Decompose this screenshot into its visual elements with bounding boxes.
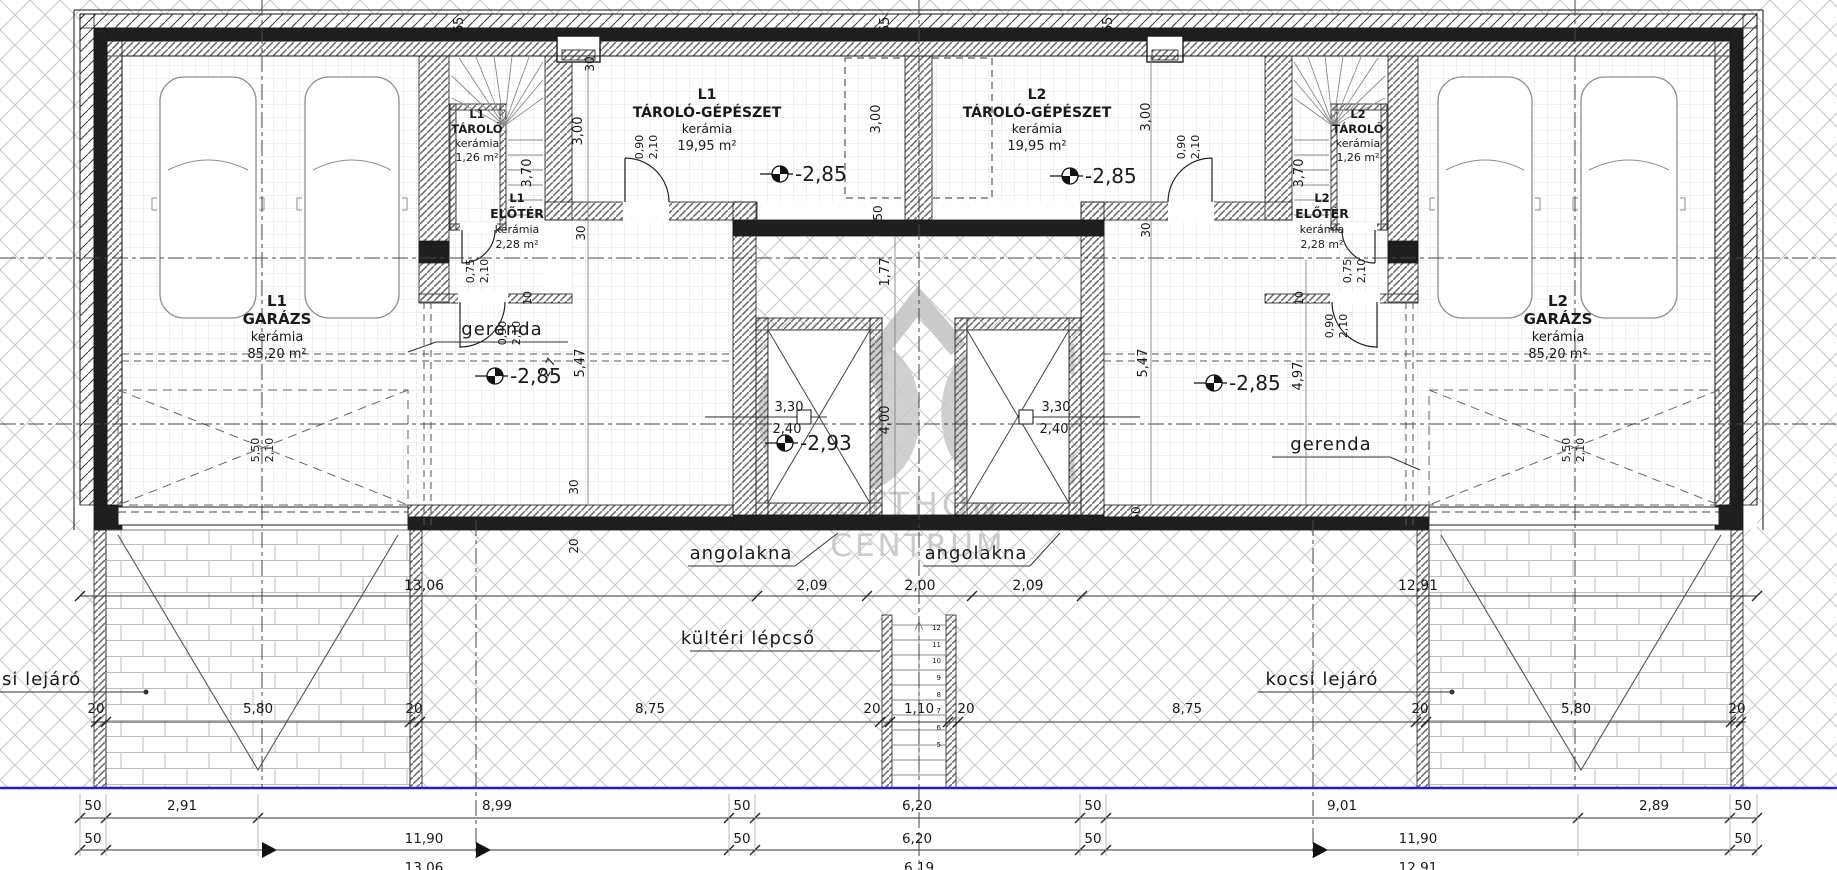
dim-label: 30 [583,56,597,71]
dim-label: 0,90 [1175,135,1188,160]
car-icon [305,77,399,318]
dim-label: 8,75 [1172,701,1202,717]
room-l2-mech-code: L2 [1028,87,1047,103]
dim-label: 50 [1084,831,1101,847]
dim-label: 4,97 [1291,362,1306,391]
room-l1-mech-code: L1 [698,87,717,103]
dim-label: 65 [878,17,893,34]
garage-door-right [1429,507,1719,525]
dim-label: 2,91 [167,798,197,814]
dim-label: 0,90 [496,321,509,346]
room-l1-hall-name: ELŐTÉR [490,206,544,221]
dim-label: 6,19 [904,860,934,870]
dim-label: 3,00 [1139,103,1154,132]
step-no: 10 [932,657,941,665]
room-l1-garage-area: 85,20 m² [247,347,306,362]
room-l1-garage-finish: kerámia [251,330,304,345]
room-l2-hall-name: ELŐTÉR [1295,206,1349,221]
room-l2-garage-finish: kerámia [1532,330,1585,345]
room-l1-storage-finish: kerámia [455,137,500,150]
room-l2-garage-name: GARÁZS [1524,309,1593,328]
room-l2-mech-finish: kerámia [1012,121,1063,136]
dim-label: 0,75 [1341,259,1354,284]
room-l2-storage-area: 1,26 m² [1336,151,1379,164]
room-l2-garage-area: 85,20 m² [1528,347,1587,362]
step-no: 8 [937,691,941,699]
dim-label: 20 [567,538,581,553]
dim-label: 13,06 [405,860,444,870]
dim-label: 10 [1293,291,1306,305]
dim-label: 9,01 [1327,798,1357,814]
dim-label: 2,89 [1639,798,1669,814]
dim-label: 5,80 [243,701,273,717]
room-l1-storage-name: TÁROLÓ [451,121,502,136]
floor-plan-drawing: OC OTTHON CENTRUM [0,0,1837,870]
room-l1-hall-finish: kerámia [495,223,540,236]
room-l2-storage-code: L2 [1350,107,1365,121]
car-icon [1581,77,1677,318]
ramp-left [106,530,410,788]
room-l2-hall-code: L2 [1314,191,1329,205]
dim-label: 50 [1129,506,1143,521]
dim-label: 6,20 [902,831,932,847]
dim-label: 20 [863,701,880,717]
dim-label: 0,90 [1323,314,1336,339]
car-icon [1438,77,1532,318]
dim-label: 0,75 [464,259,477,284]
note-beam-right: gerenda [1290,434,1371,455]
level-l1-mech: -2,85 [795,162,847,186]
dim-label: 50 [84,831,101,847]
dim-label: 1,77 [878,258,893,287]
dim-label: 50 [1734,798,1751,814]
step-no: 12 [932,624,941,632]
room-l1-mech-finish: kerámia [682,121,733,136]
dim-label: 5,50 [249,438,262,463]
dim-label: 50 [84,798,101,814]
room-l2-hall-finish: kerámia [1300,223,1345,236]
shaft-left-dim2: 2,40 [773,422,802,437]
dim-label: 11,90 [1399,831,1438,847]
dim-label: 5,47 [1136,349,1151,378]
room-l1-storage-area: 1,26 m² [455,151,498,164]
shaft-left-dim1: 3,30 [775,400,804,415]
dim-label: 0,90 [633,135,646,160]
level-shaft: -2,93 [800,431,852,455]
dim-label: 3,00 [869,105,884,134]
dim-label: 50 [1084,798,1101,814]
dim-label: 2,00 [904,578,935,594]
room-l1-garage-code: L1 [267,292,287,310]
car-icon [160,77,256,318]
dim-label: 2,10 [263,438,276,463]
dim-label: 20 [1411,701,1428,717]
dim-label: 30 [1139,222,1153,237]
step-no: 9 [937,674,941,682]
level-l2-garage: -2,85 [1229,371,1281,395]
room-l2-mech-area: 19,95 m² [1007,139,1066,154]
dim-label: 8,75 [635,701,665,717]
step-no: 5 [937,741,941,749]
ramp-right [1429,530,1731,788]
room-l1-hall-area: 2,28 m² [495,238,538,251]
room-l2-storage-name: TÁROLÓ [1332,121,1383,136]
dim-label: 20 [957,701,974,717]
dim-label: 20 [1728,701,1745,717]
dim-label: 2,10 [510,321,523,346]
shaft-right-dim1: 3,30 [1042,400,1071,415]
dim-label: 3,70 [1292,159,1307,188]
drain-box-right [1019,410,1033,424]
dim-label: 2,09 [1012,578,1043,594]
dim-label: 65 [452,17,467,34]
room-l2-garage-code: L2 [1548,292,1568,310]
dim-label: 30 [567,479,581,494]
room-l1-storage-code: L1 [469,107,484,121]
step-no: 7 [937,707,941,715]
dim-label: 50 [871,205,885,220]
dim-label: 8,99 [482,798,512,814]
dim-label: 11,90 [405,831,444,847]
step-no: 6 [937,724,942,732]
floorplan-canvas: OC OTTHON CENTRUM [0,0,1837,870]
note-outdoor-stair: kültéri lépcső [681,628,815,649]
dim-label: 13,06 [404,578,444,594]
room-l2-mech-name: TÁROLÓ-GÉPÉSZET [963,103,1112,121]
dim-label: 2,10 [478,259,491,284]
room-l2-storage-finish: kerámia [1336,137,1381,150]
dim-label: 2,10 [1337,314,1350,339]
room-l1-hall-code: L1 [509,191,524,205]
dim-label: 10 [521,291,534,305]
shaft-right-dim2: 2,40 [1040,422,1069,437]
note-lightwell-right: angolakna [925,543,1028,564]
dim-label: 2,10 [1189,135,1202,160]
dim-label: 20 [87,701,104,717]
level-l2-mech: -2,85 [1085,164,1137,188]
dim-label: 3,00 [571,117,586,146]
dim-label: 2,10 [1355,259,1368,284]
dim-label: 30 [574,225,588,240]
note-car-ramp-left: si lejáró [2,669,81,690]
dim-label: 4,00 [878,406,893,435]
dim-label: 6,20 [902,798,932,814]
note-lightwell-left: angolakna [690,543,793,564]
step-no: 11 [932,641,941,649]
dim-label: 50 [733,798,750,814]
room-l2-hall-area: 2,28 m² [1300,238,1343,251]
dim-label: 3,70 [520,159,535,188]
room-l1-mech-name: TÁROLÓ-GÉPÉSZET [633,103,782,121]
dim-label: 12,91 [1398,578,1438,594]
note-car-ramp-right: kocsi lejáró [1266,669,1379,690]
dim-label: 50 [733,831,750,847]
dim-label: 5,80 [1561,701,1591,717]
dim-label: 20 [405,701,422,717]
dim-label: 12,91 [1399,860,1438,870]
dim-label: 5,50 [1560,438,1573,463]
garage-door-left [118,507,408,525]
dim-label: 2,09 [796,578,827,594]
dim-label: 5,47 [573,349,588,378]
dim-label: 2,10 [1574,438,1587,463]
room-l1-garage-name: GARÁZS [243,309,312,328]
room-l1-mech-area: 19,95 m² [677,139,736,154]
dim-label: 65 [1101,17,1116,34]
dim-label: 50 [1734,831,1751,847]
dim-label: 1,10 [904,701,934,717]
dim-label: 2,10 [647,135,660,160]
